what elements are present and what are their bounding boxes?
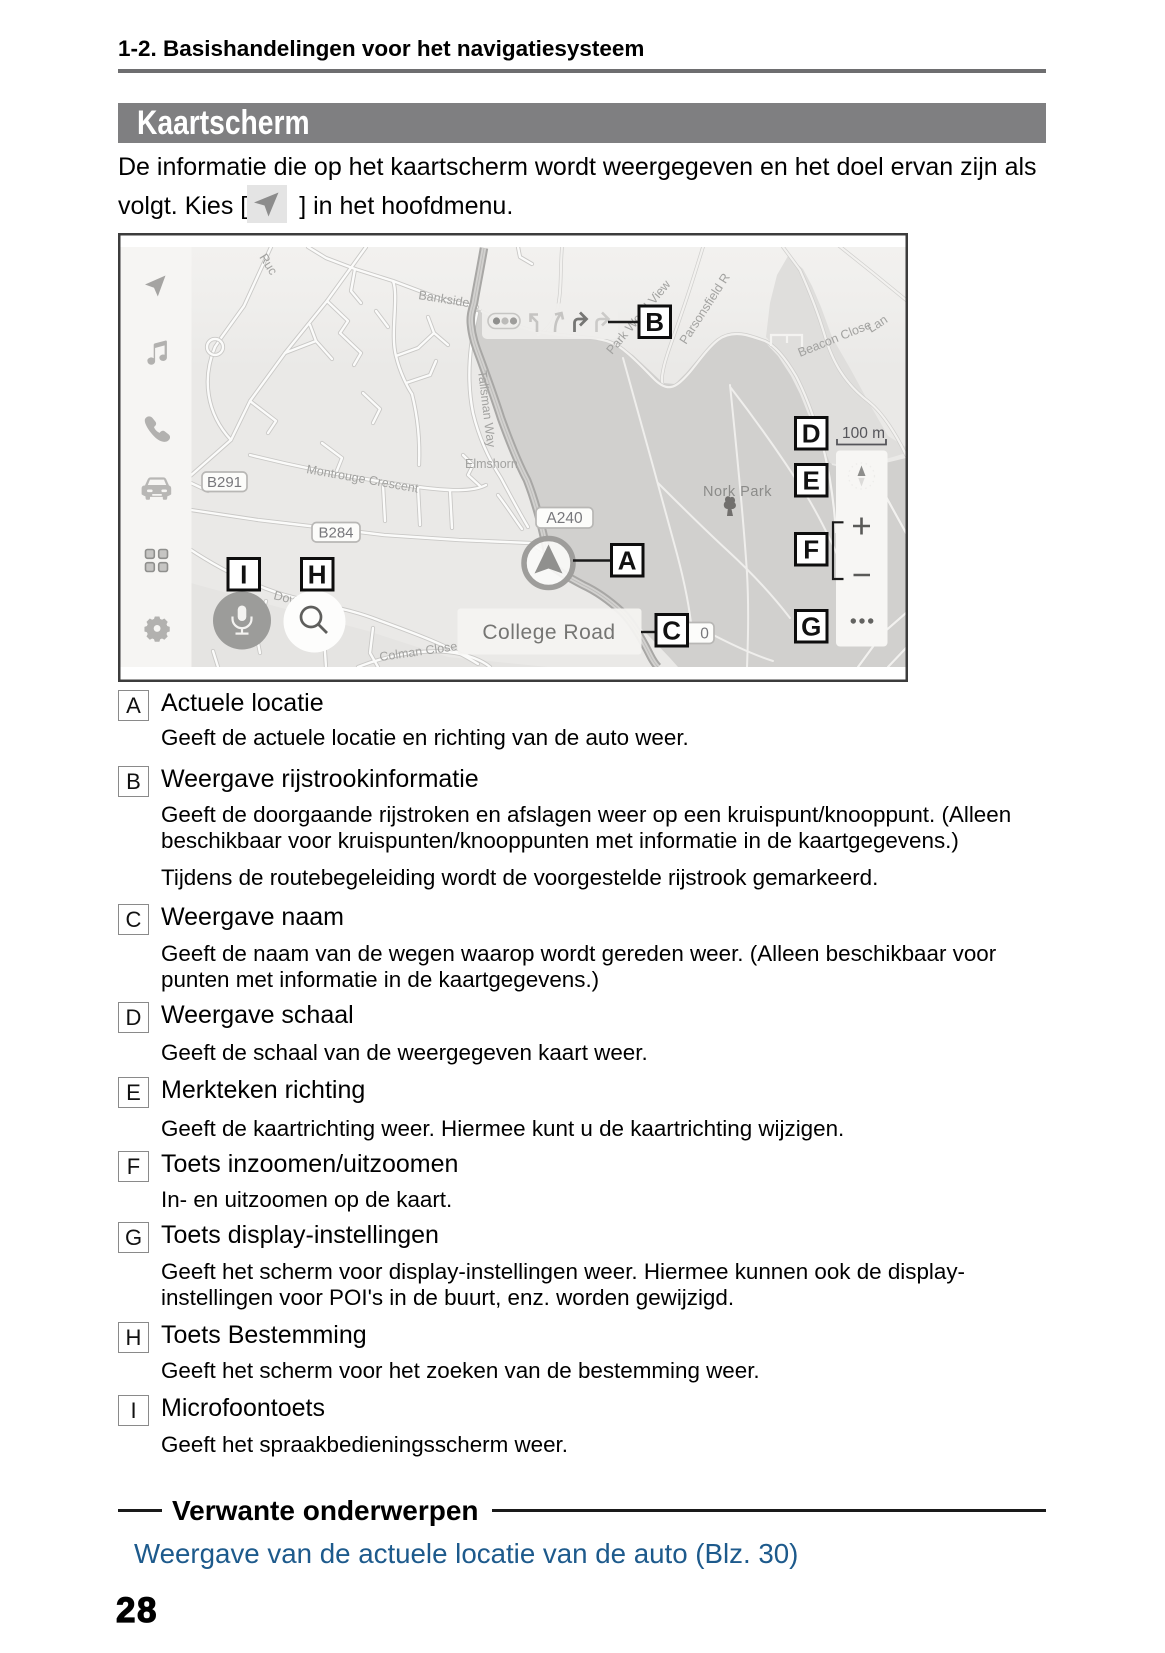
- svg-text:E: E: [803, 466, 820, 496]
- svg-text:100 m: 100 m: [842, 425, 885, 442]
- svg-text:I: I: [240, 560, 247, 590]
- svg-text:F: F: [803, 535, 819, 565]
- svg-text:D: D: [802, 419, 821, 449]
- svg-text:Elmshorn: Elmshorn: [465, 457, 518, 471]
- svg-text:C: C: [662, 616, 681, 646]
- svg-text:A: A: [618, 546, 637, 576]
- svg-text:0: 0: [700, 626, 709, 643]
- svg-text:B291: B291: [207, 474, 242, 491]
- svg-text:B284: B284: [318, 525, 353, 542]
- svg-text:College Road: College Road: [482, 621, 615, 644]
- svg-text:Nork Park: Nork Park: [703, 484, 772, 500]
- svg-text:G: G: [801, 612, 821, 642]
- svg-text:H: H: [308, 560, 327, 590]
- svg-text:B: B: [645, 307, 664, 337]
- svg-text:A240: A240: [546, 510, 583, 527]
